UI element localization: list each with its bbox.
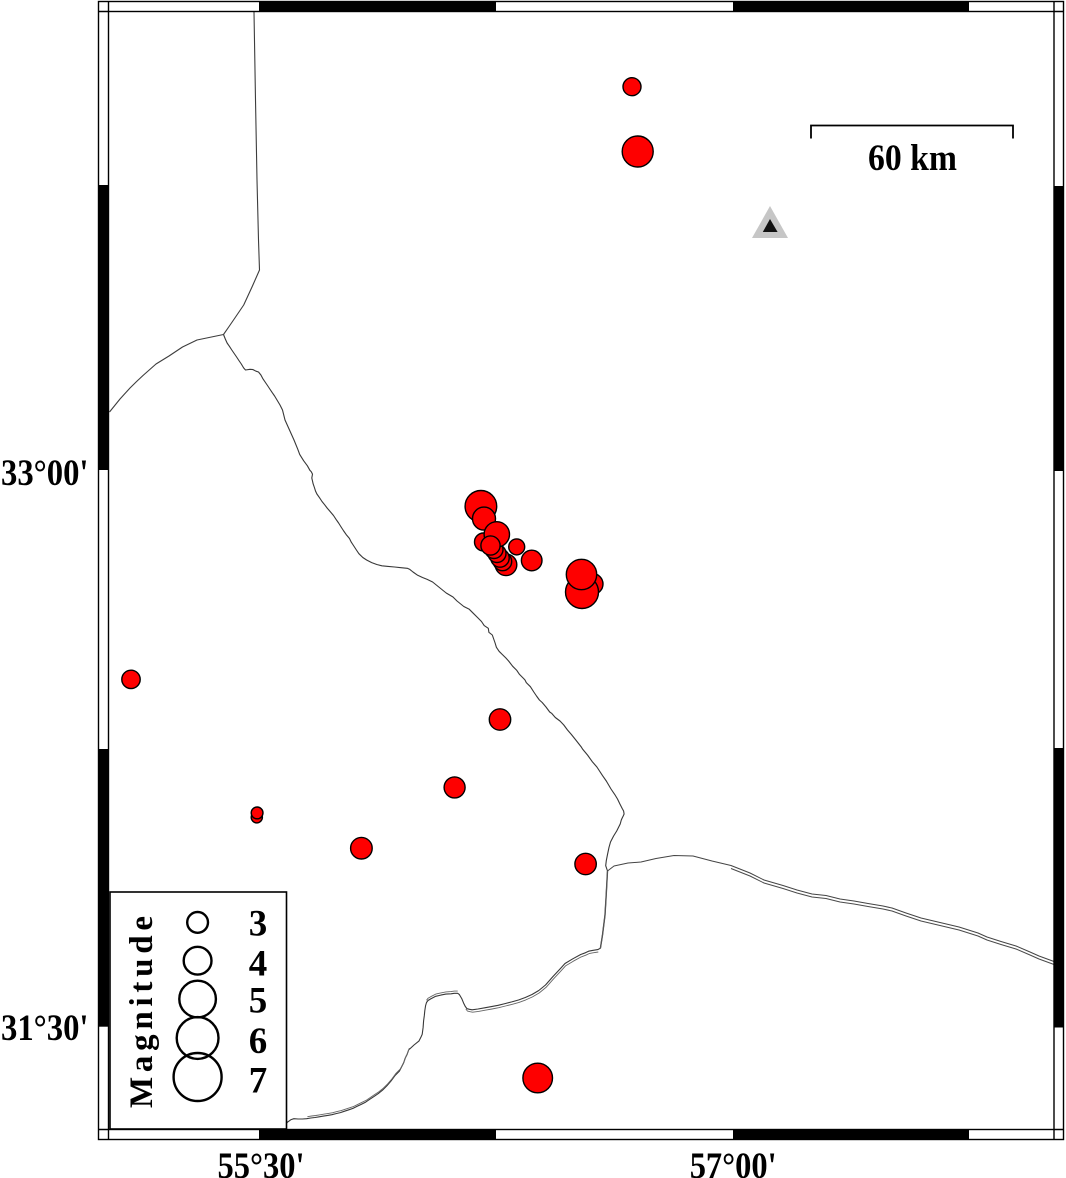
svg-text:31°30': 31°30' [1, 1008, 89, 1049]
svg-text:5: 5 [249, 981, 268, 1022]
svg-text:57°00': 57°00' [690, 1146, 777, 1178]
svg-text:7: 7 [249, 1061, 268, 1102]
svg-text:60 km: 60 km [868, 138, 957, 179]
svg-text:4: 4 [249, 944, 268, 985]
svg-text:33°00': 33°00' [1, 453, 89, 494]
svg-text:6: 6 [249, 1021, 268, 1062]
svg-text:Magnitude: Magnitude [124, 916, 160, 1108]
svg-text:55°30': 55°30' [218, 1146, 305, 1178]
svg-text:3: 3 [249, 904, 268, 945]
